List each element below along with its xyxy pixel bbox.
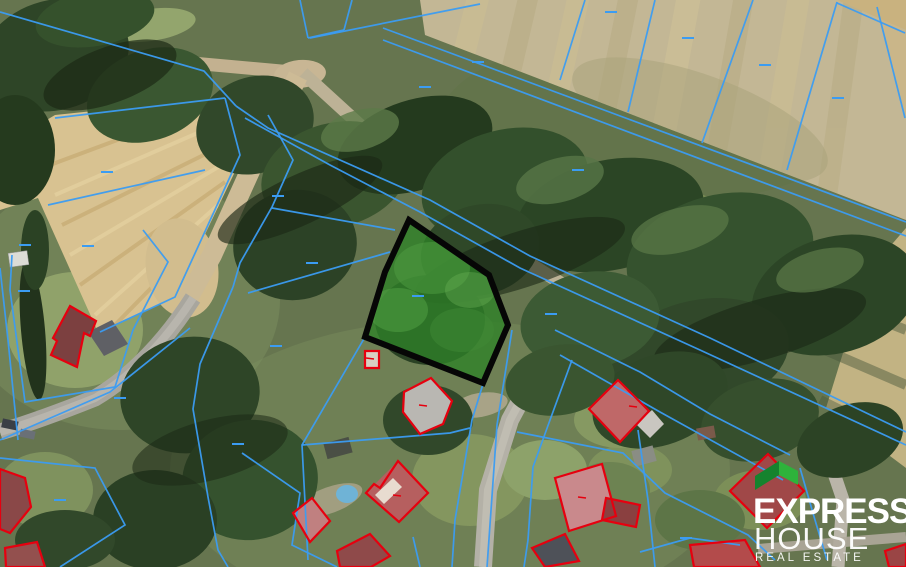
building-tick — [578, 497, 586, 498]
building-tick — [393, 495, 401, 496]
brand-tagline: REAL ESTATE — [755, 553, 864, 565]
building-tick — [366, 358, 374, 359]
logo-roof-left-panel — [755, 461, 779, 490]
building-tick — [629, 406, 637, 407]
aerial-map-screenshot: EXPRESS HOUSE REAL ESTATE — [0, 0, 906, 567]
building-tick — [419, 405, 427, 406]
brand-name-line2: HOUSE — [754, 523, 869, 554]
logo-roof-right-panel — [779, 461, 798, 485]
brand-house-icon — [753, 458, 800, 492]
brand-watermark: EXPRESS HOUSE REAL ESTATE — [753, 458, 906, 567]
